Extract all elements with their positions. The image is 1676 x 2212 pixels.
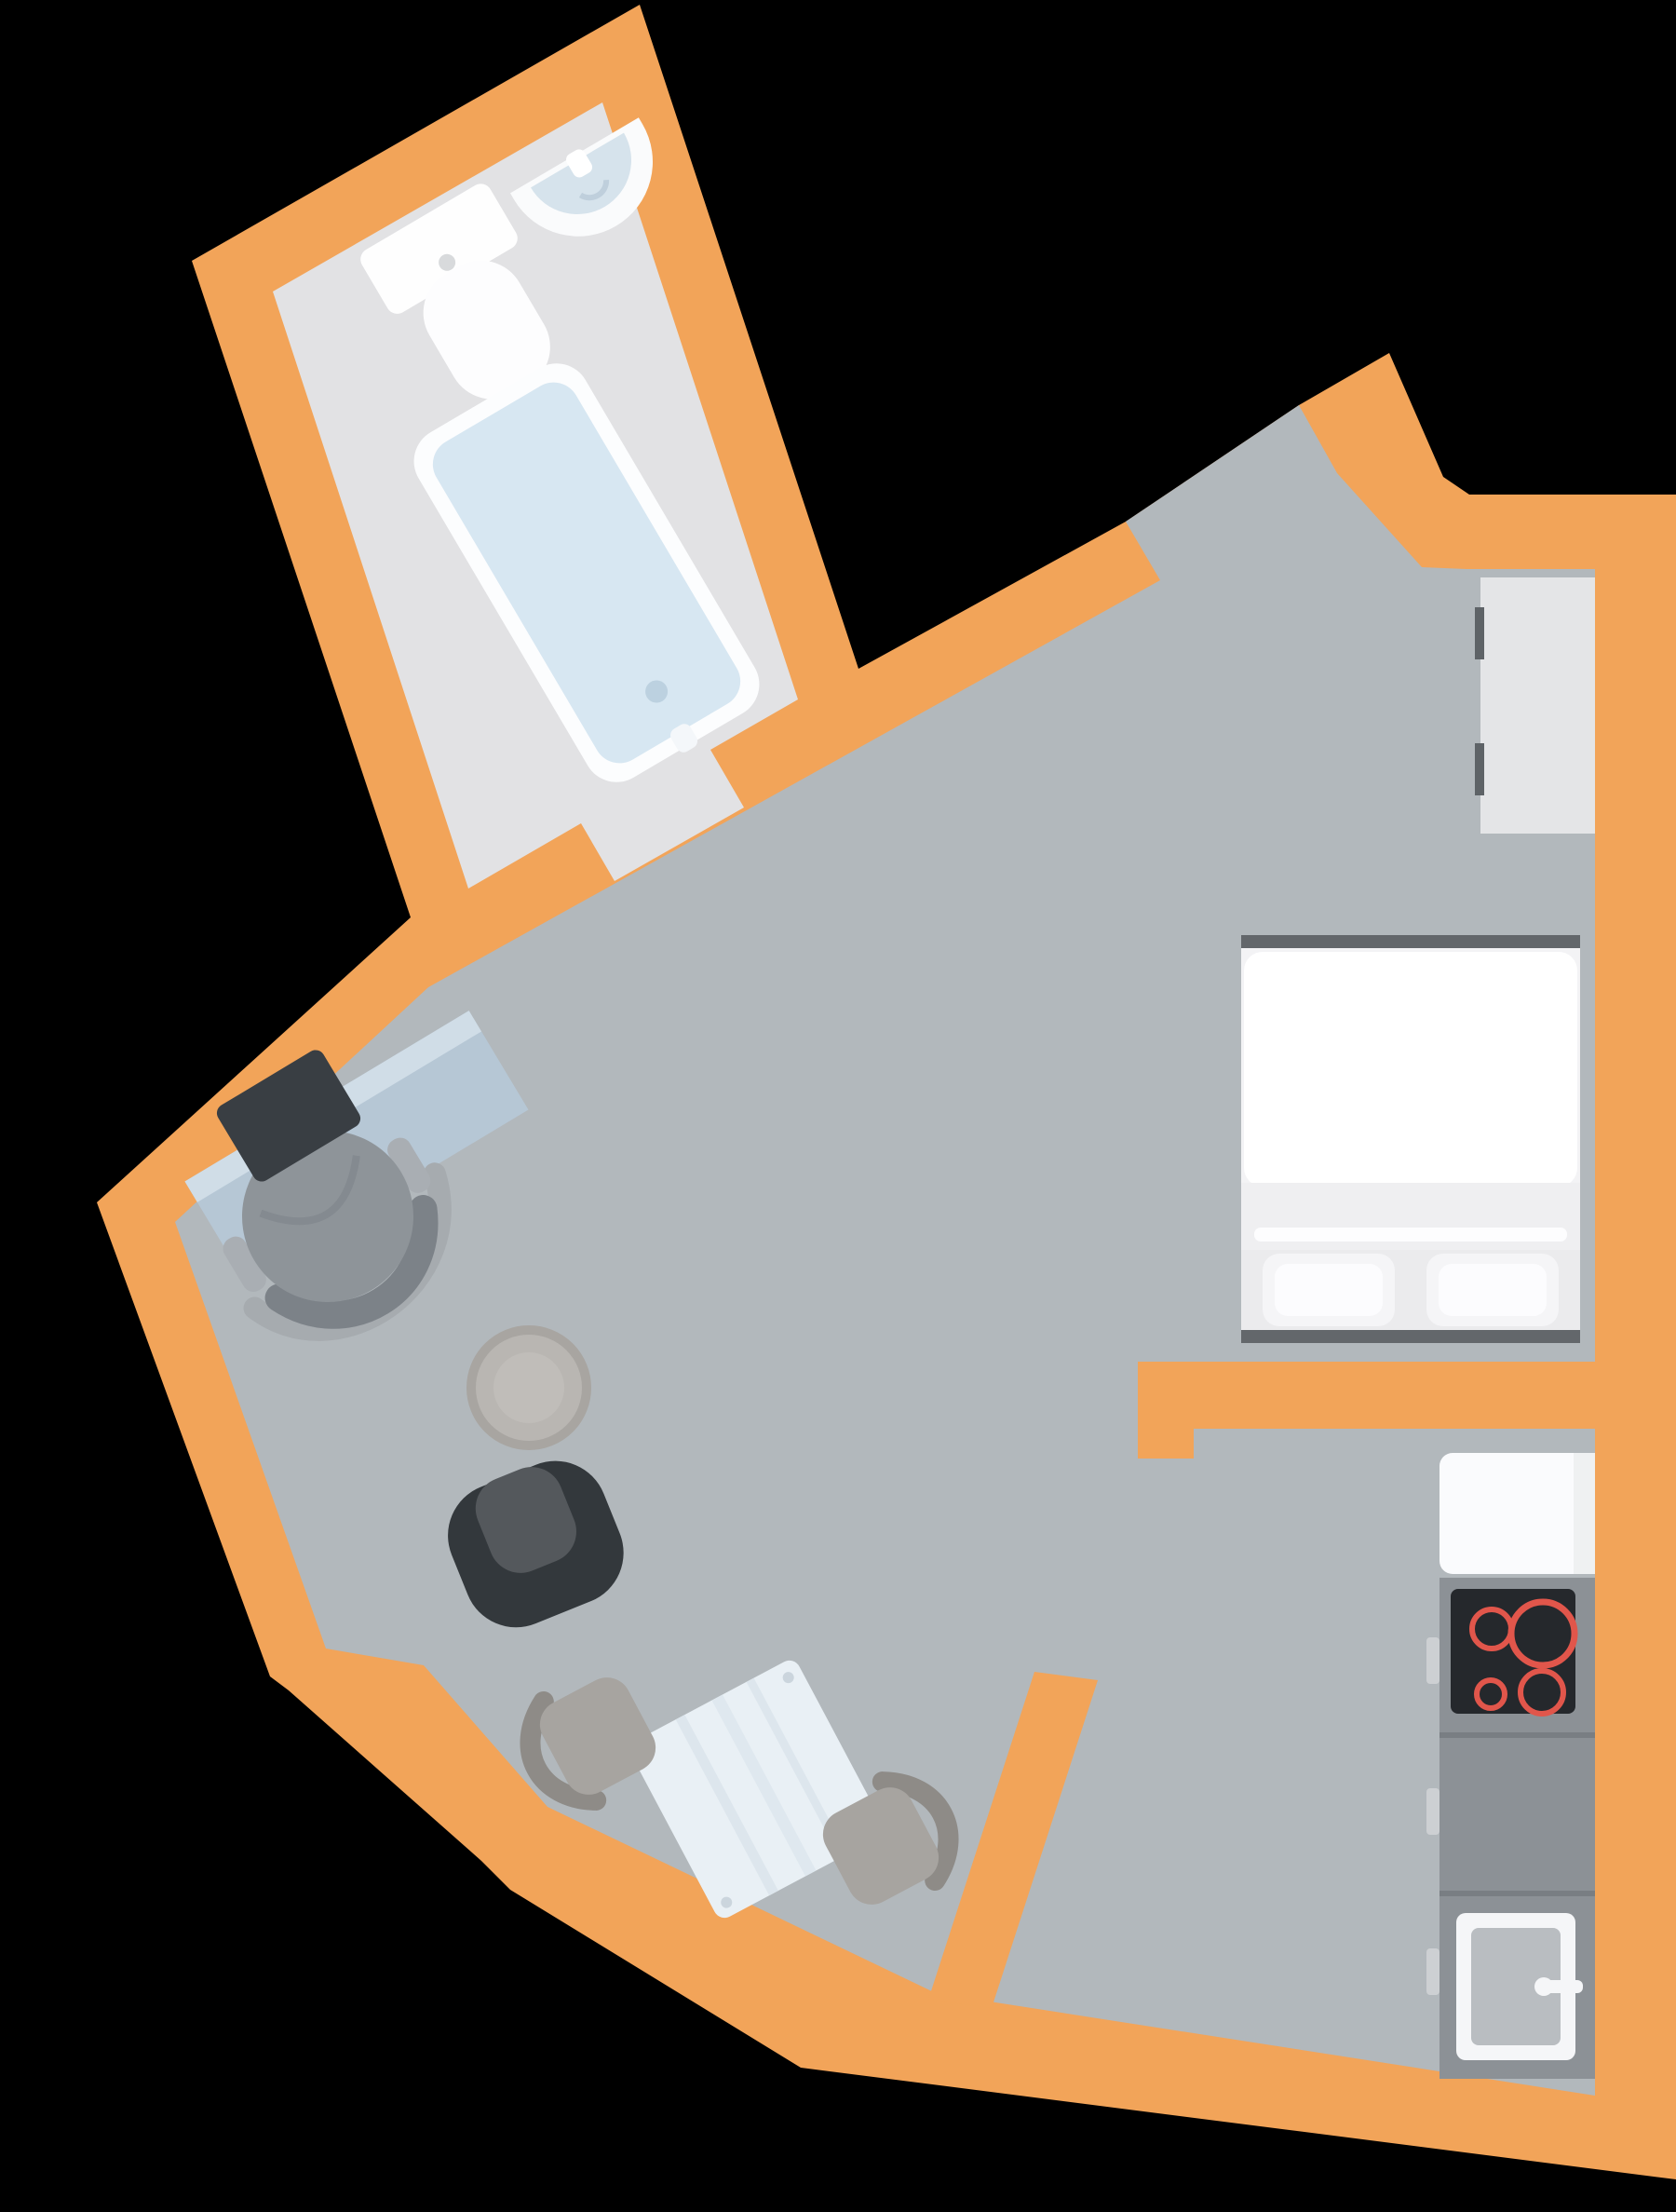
fridge-unit-side: [1574, 1453, 1595, 1574]
bed-foot-rail: [1241, 1330, 1580, 1343]
bed-head-rail: [1241, 935, 1580, 950]
wardrobe: [1475, 577, 1595, 834]
floor-plan-canvas: [0, 0, 1676, 2212]
wardrobe-handle: [1475, 607, 1484, 659]
sink-tap-head: [1534, 1977, 1553, 1996]
pillow-left-inner: [1275, 1264, 1383, 1316]
cabinet-handle: [1426, 1637, 1439, 1684]
divider-door-jamb-stub: [1138, 1362, 1194, 1459]
counter-seam: [1439, 1891, 1595, 1896]
bed-sheet-stripe: [1254, 1228, 1567, 1242]
wardrobe-handle: [1475, 743, 1484, 795]
bed-duvet: [1244, 952, 1577, 1187]
double-bed: [1241, 935, 1580, 1343]
kitchen-units: [1426, 1453, 1595, 2079]
wardrobe-body: [1480, 577, 1595, 834]
stool: [471, 1330, 587, 1445]
counter-seam: [1439, 1732, 1595, 1738]
stool-cushion: [493, 1352, 564, 1423]
cabinet-handle: [1426, 1948, 1439, 1995]
pillow-right-inner: [1439, 1264, 1547, 1316]
fridge-unit: [1439, 1453, 1595, 1574]
cabinet-handle: [1426, 1788, 1439, 1835]
